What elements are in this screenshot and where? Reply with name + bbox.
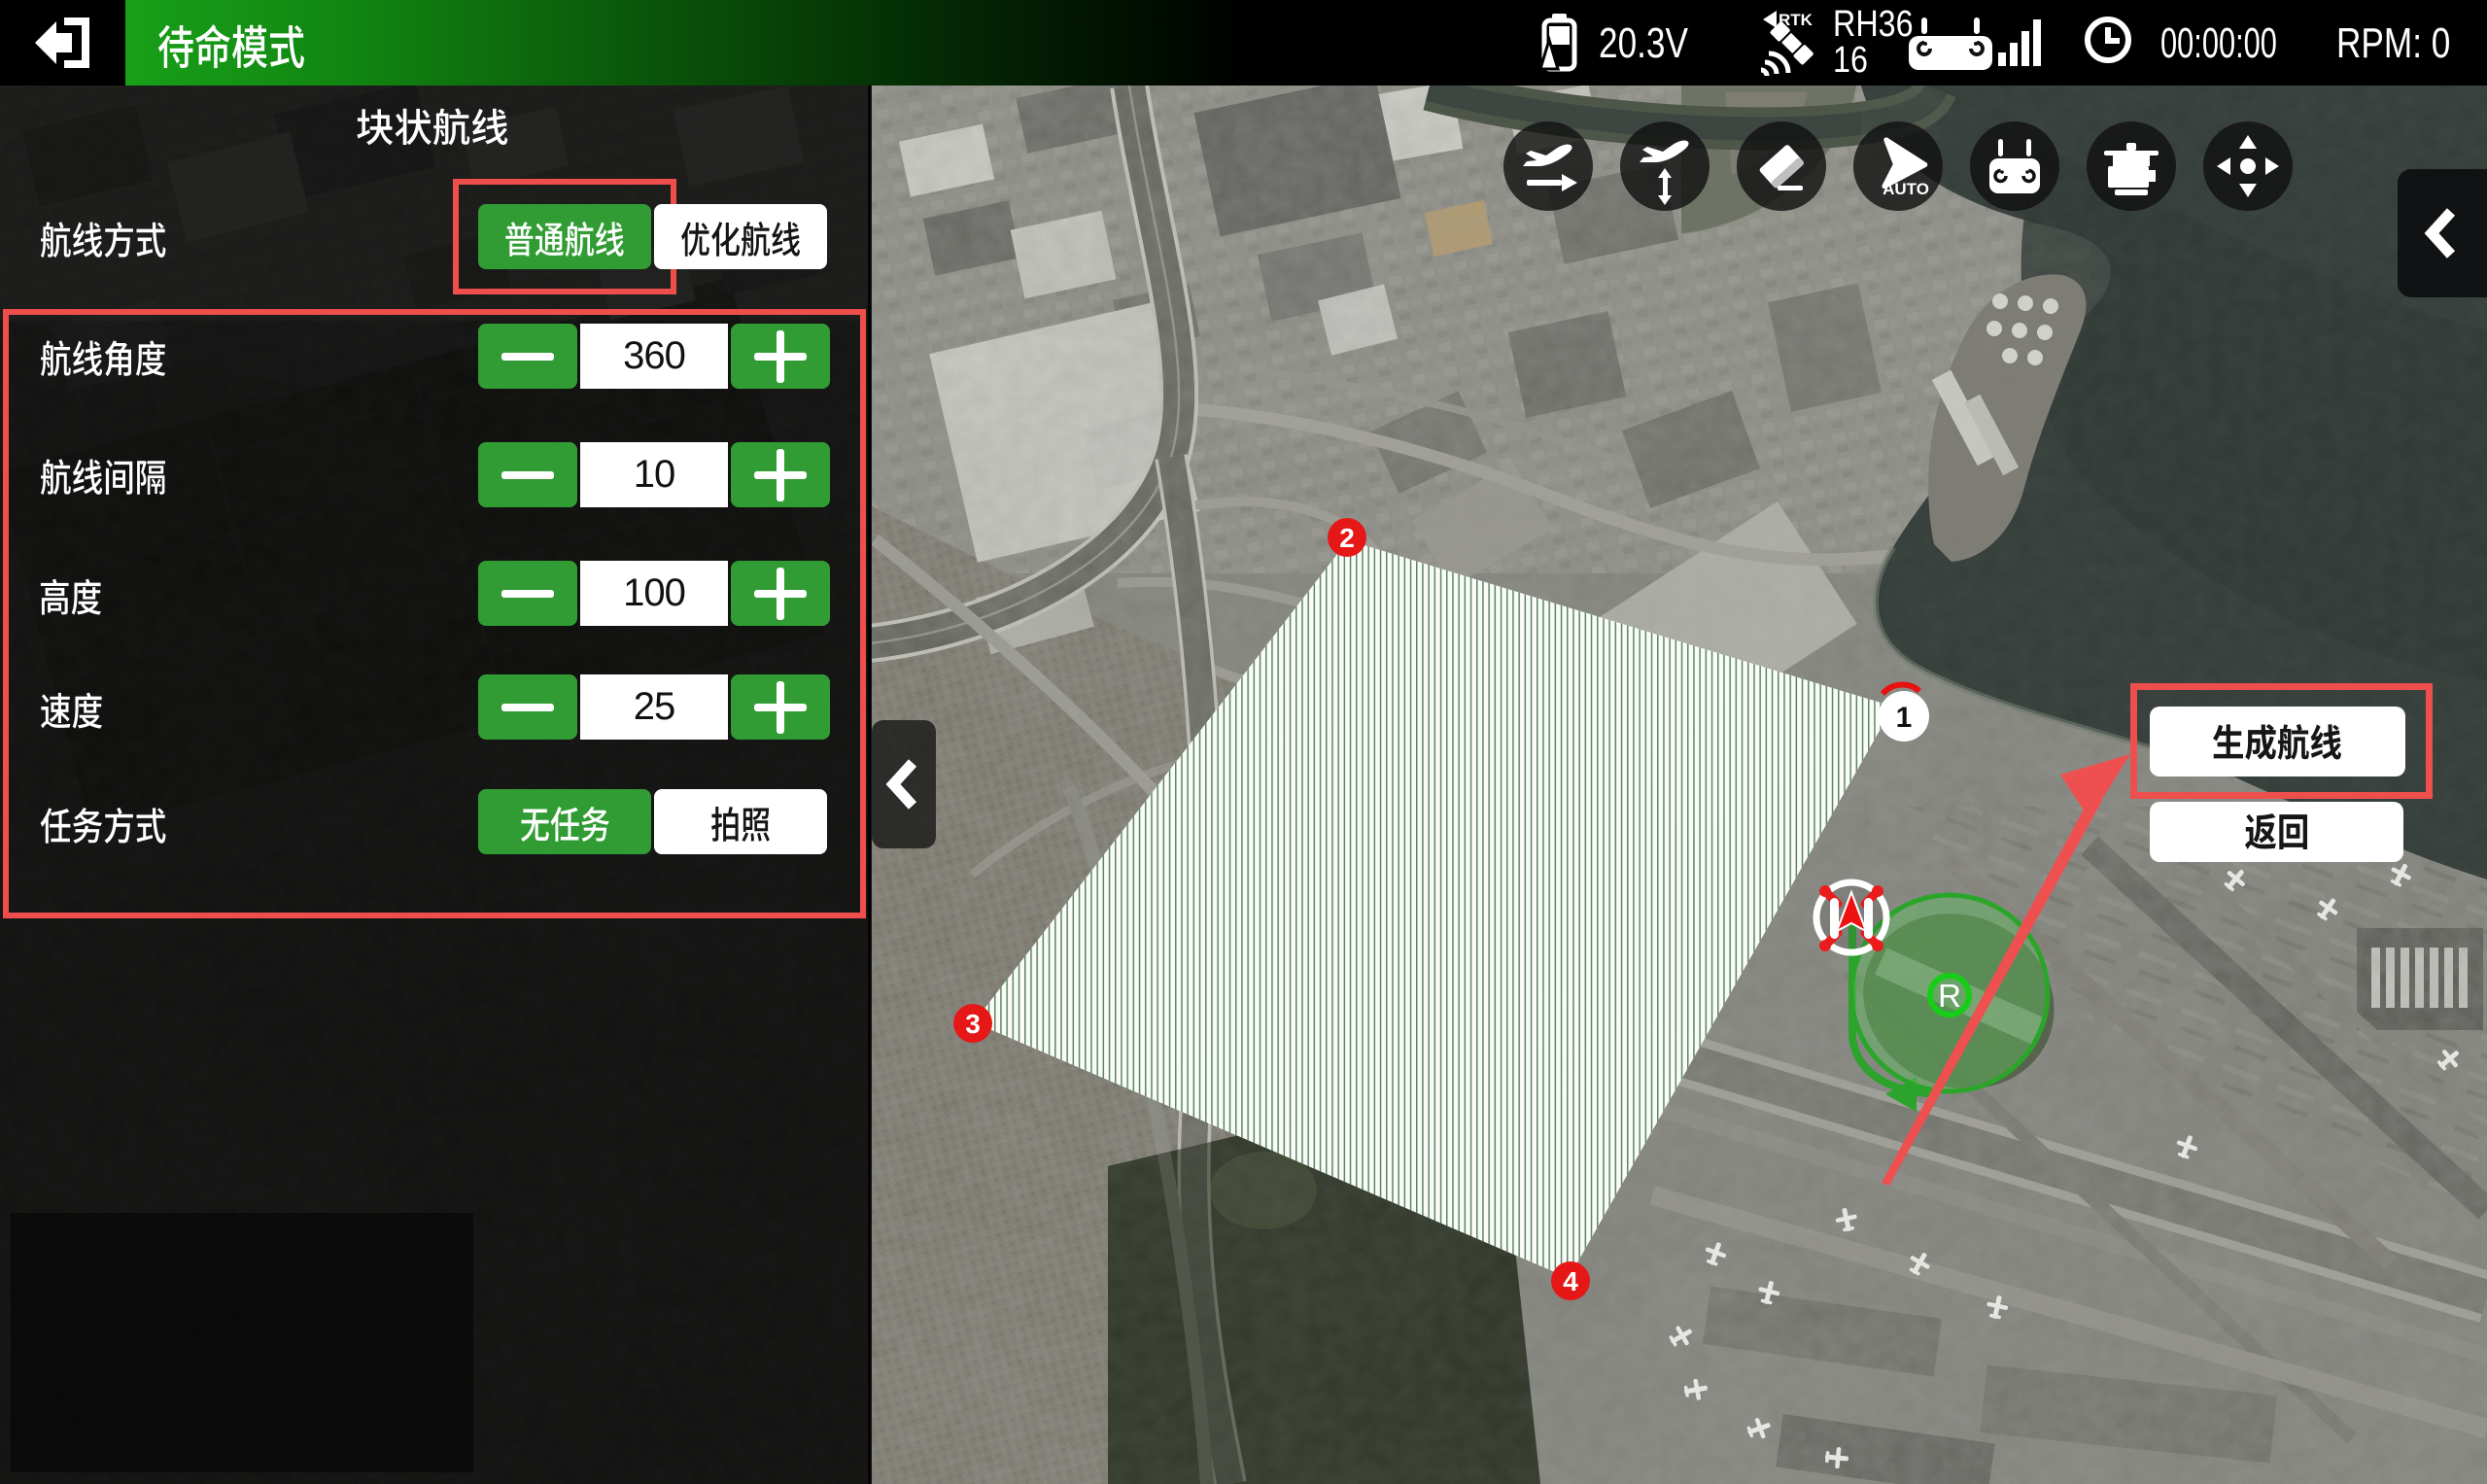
svg-text:AUTO: AUTO (1883, 180, 1929, 198)
svg-text:4: 4 (1563, 1266, 1578, 1296)
svg-text:RTK: RTK (1779, 11, 1813, 29)
svg-text:2: 2 (1339, 523, 1355, 553)
svg-text:R: R (1938, 978, 1961, 1014)
svg-text:3: 3 (965, 1009, 981, 1039)
svg-text:1: 1 (1896, 702, 1913, 734)
